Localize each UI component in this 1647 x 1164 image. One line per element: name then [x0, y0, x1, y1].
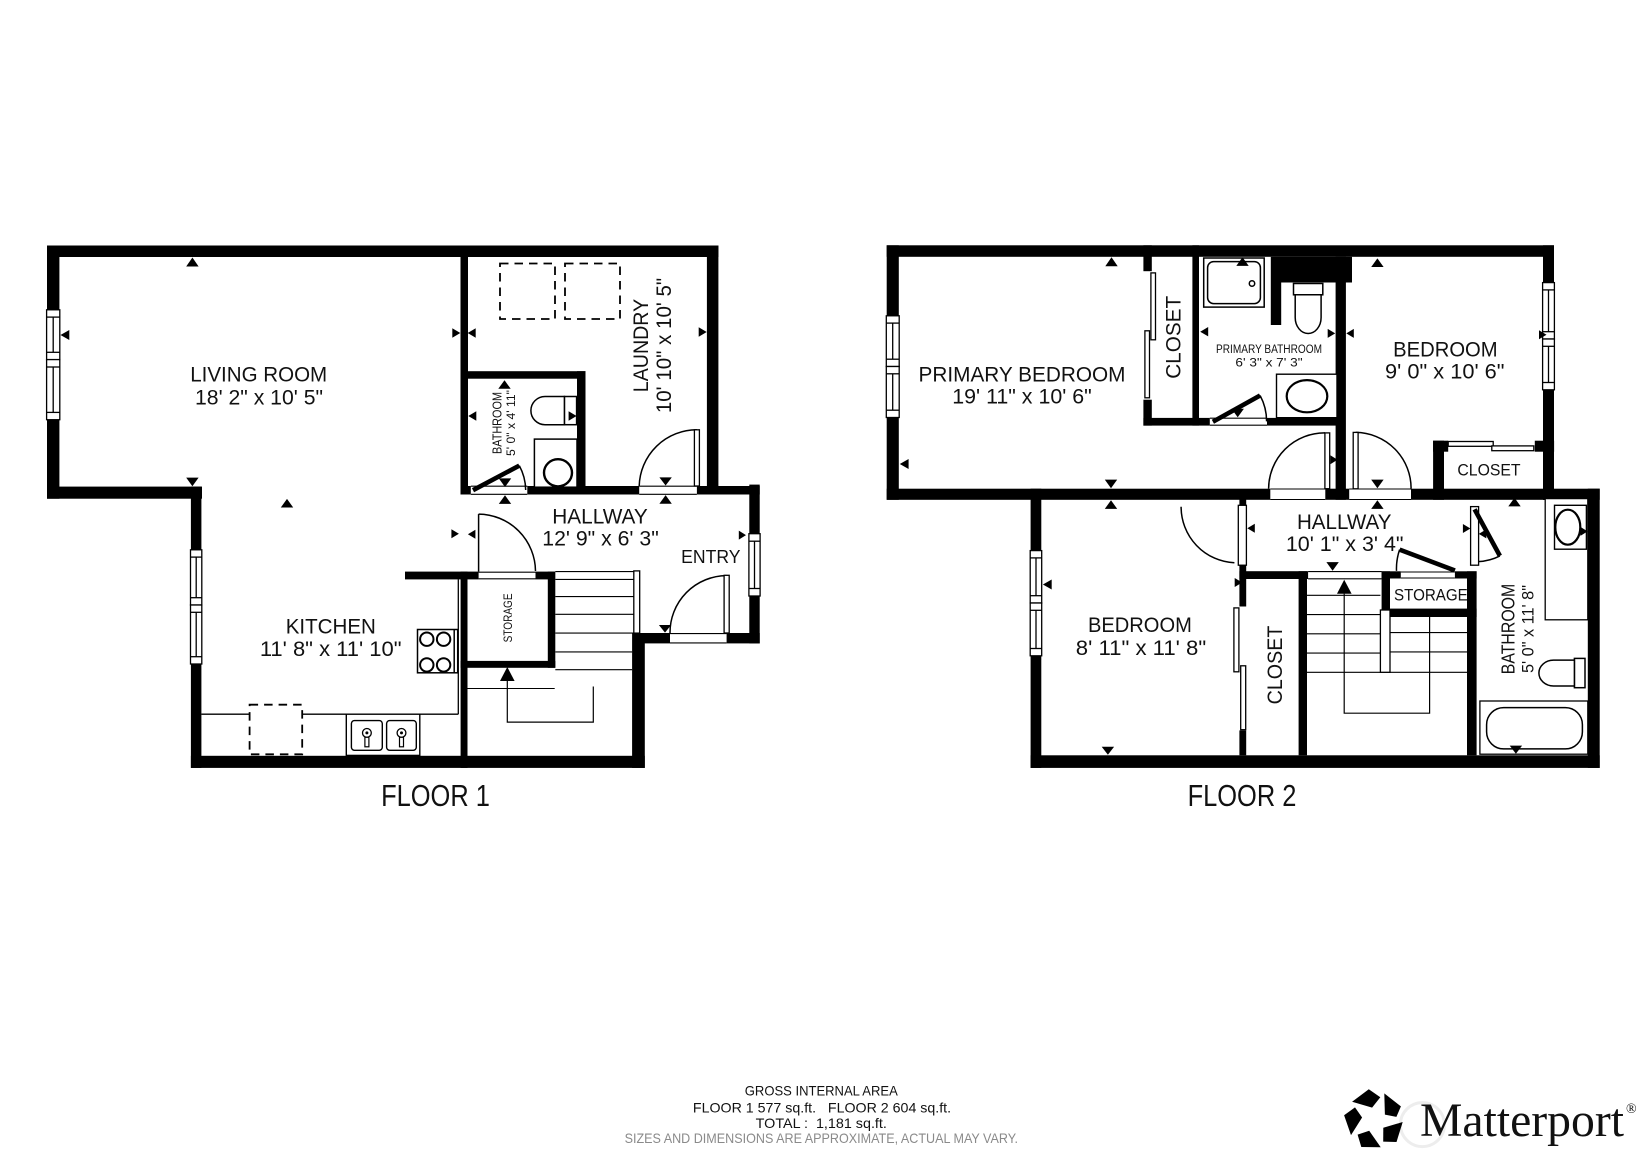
svg-text:CLOSET: CLOSET [1162, 296, 1186, 379]
svg-text:®: ® [1626, 1102, 1637, 1117]
svg-text:FLOOR 1: FLOOR 1 [381, 778, 490, 813]
svg-text:5' 0" x 11' 8": 5' 0" x 11' 8" [1519, 585, 1538, 673]
svg-text:ENTRY: ENTRY [681, 546, 740, 567]
svg-text:FLOOR 2: FLOOR 2 [1188, 778, 1297, 813]
svg-text:FLOOR 1 577 sq.ft. FLOOR 2 6: FLOOR 1 577 sq.ft. FLOOR 2 604 sq.ft. [693, 1100, 951, 1116]
svg-text:GROSS INTERNAL AREA: GROSS INTERNAL AREA [745, 1083, 899, 1099]
svg-text:18' 2" x 10' 5": 18' 2" x 10' 5" [195, 387, 323, 410]
svg-text:HALLWAY: HALLWAY [1297, 511, 1392, 534]
svg-text:STORAGE: STORAGE [501, 593, 515, 642]
svg-text:12' 9" x 6' 3": 12' 9" x 6' 3" [542, 528, 659, 551]
svg-text:BATHROOM: BATHROOM [490, 392, 504, 454]
svg-text:HALLWAY: HALLWAY [552, 506, 648, 529]
svg-text:6' 3" x 7' 3": 6' 3" x 7' 3" [1235, 358, 1302, 370]
svg-text:BEDROOM: BEDROOM [1393, 338, 1498, 361]
svg-text:10' 10" x 10' 5": 10' 10" x 10' 5" [653, 278, 676, 413]
svg-text:5' 0" x 4' 11": 5' 0" x 4' 11" [504, 390, 518, 456]
svg-text:PRIMARY BEDROOM: PRIMARY BEDROOM [919, 364, 1126, 387]
svg-text:LIVING ROOM: LIVING ROOM [190, 364, 327, 387]
svg-text:CLOSET: CLOSET [1457, 461, 1520, 480]
svg-text:SIZES AND DIMENSIONS ARE APPRO: SIZES AND DIMENSIONS ARE APPROXIMATE, AC… [625, 1130, 1018, 1146]
svg-text:8' 11" x 11' 8": 8' 11" x 11' 8" [1076, 637, 1207, 660]
svg-text:11' 8" x 11' 10": 11' 8" x 11' 10" [260, 638, 402, 661]
svg-text:BATHROOM: BATHROOM [1499, 584, 1519, 675]
svg-text:PRIMARY BATHROOM: PRIMARY BATHROOM [1216, 344, 1322, 356]
svg-text:STORAGE: STORAGE [1394, 585, 1468, 604]
svg-text:BEDROOM: BEDROOM [1088, 614, 1192, 637]
svg-text:KITCHEN: KITCHEN [286, 616, 376, 639]
svg-text:9' 0" x 10' 6": 9' 0" x 10' 6" [1385, 360, 1505, 383]
svg-text:CLOSET: CLOSET [1263, 626, 1287, 705]
svg-text:LAUNDRY: LAUNDRY [630, 299, 653, 392]
svg-text:19' 11" x 10' 6": 19' 11" x 10' 6" [952, 386, 1092, 409]
svg-text:Matterport: Matterport [1420, 1094, 1625, 1147]
svg-text:10' 1" x 3' 4": 10' 1" x 3' 4" [1286, 533, 1404, 556]
svg-text:TOTAL : 1,181 sq.ft.: TOTAL : 1,181 sq.ft. [756, 1115, 887, 1131]
